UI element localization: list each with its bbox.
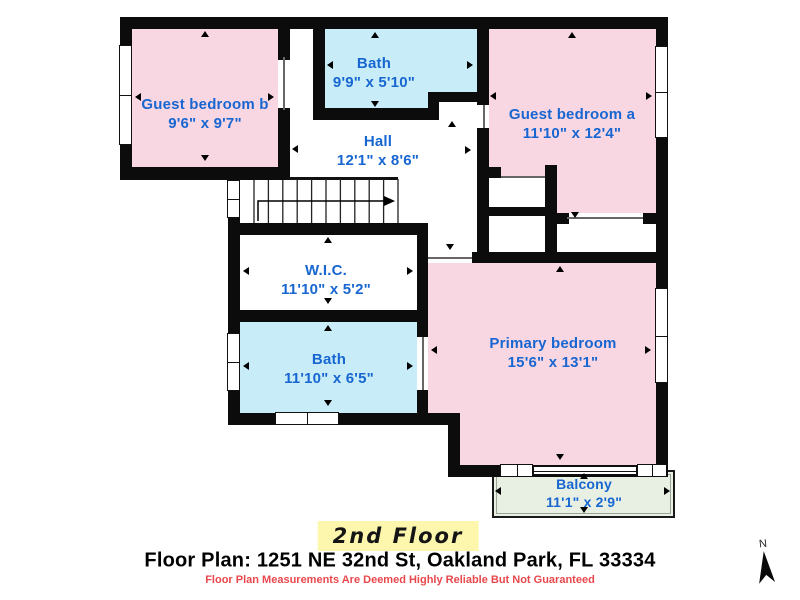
room-name: Bath: [284, 350, 374, 369]
window: [500, 464, 533, 477]
wall: [313, 17, 325, 120]
window: [637, 464, 667, 477]
wall: [313, 108, 439, 120]
wall: [477, 17, 489, 105]
measure-arrow-icon: [292, 145, 298, 153]
stairs: [240, 176, 400, 224]
window: [275, 412, 339, 425]
label-bath-lower: Bath 11'10" x 6'5": [284, 350, 374, 388]
room-dims: 15'6" x 13'1": [489, 353, 616, 372]
label-primary-bedroom: Primary bedroom 15'6" x 13'1": [489, 334, 616, 372]
label-guest-bedroom-a: Guest bedroom a 11'10" x 12'4": [509, 105, 635, 143]
wall: [417, 223, 428, 337]
door-opening: [501, 176, 545, 178]
measure-arrow-icon: [431, 346, 437, 354]
measure-arrow-icon: [556, 266, 564, 272]
door-opening: [283, 57, 285, 110]
compass: N: [745, 536, 784, 589]
room-name: Guest bedroom b: [141, 95, 268, 114]
stairs-direction-line: [258, 201, 384, 221]
wall: [545, 165, 557, 263]
measure-arrow-icon: [407, 362, 413, 370]
floor-label: 2nd Floor: [318, 521, 479, 551]
room-name: Balcony: [546, 476, 622, 494]
label-bath-upper: Bath 9'9" x 5'10": [333, 54, 415, 92]
wall: [472, 252, 668, 263]
measure-arrow-icon: [268, 93, 274, 101]
address-title: Floor Plan: 1251 NE 32nd St, Oakland Par…: [144, 550, 655, 573]
room-name: Primary bedroom: [489, 334, 616, 353]
measure-arrow-icon: [448, 121, 456, 127]
wall: [483, 207, 547, 216]
room-dims: 11'1" x 2'9": [546, 494, 622, 512]
wall: [228, 310, 428, 322]
room-name: W.I.C.: [281, 261, 371, 280]
measure-arrow-icon: [201, 31, 209, 37]
measure-arrow-icon: [646, 92, 652, 100]
label-guest-bedroom-b: Guest bedroom b 9'6" x 9'7": [141, 95, 268, 133]
room-name: Hall: [337, 132, 419, 151]
measure-arrow-icon: [243, 362, 249, 370]
measure-arrow-icon: [645, 346, 651, 354]
measure-arrow-icon: [490, 92, 496, 100]
measure-arrow-icon: [465, 146, 471, 154]
primary-step-cutout: [428, 425, 448, 465]
room-dims: 12'1" x 8'6": [337, 151, 419, 170]
measure-arrow-icon: [556, 454, 564, 460]
measure-arrow-icon: [407, 267, 413, 275]
label-wic: W.I.C. 11'10" x 5'2": [281, 261, 371, 299]
measure-arrow-icon: [324, 400, 332, 406]
measure-arrow-icon: [201, 155, 209, 161]
measure-arrow-icon: [371, 101, 379, 107]
room-dims: 11'10" x 6'5": [284, 369, 374, 388]
door-opening: [483, 105, 485, 128]
wall: [278, 108, 290, 180]
wall: [428, 92, 439, 120]
measure-arrow-icon: [324, 237, 332, 243]
measure-arrow-icon: [568, 32, 576, 38]
north-arrow-icon: [751, 550, 780, 585]
room-dims: 9'6" x 9'7": [141, 114, 268, 133]
floor-plan: Guest bedroom b 9'6" x 9'7" Bath 9'9" x …: [0, 0, 800, 600]
wall: [228, 413, 460, 425]
room-dims: 9'9" x 5'10": [333, 73, 415, 92]
stairs-direction-arrow-icon: [384, 196, 395, 206]
window: [655, 288, 668, 383]
wall: [278, 17, 290, 60]
measure-arrow-icon: [243, 267, 249, 275]
window: [655, 46, 668, 138]
wall: [120, 167, 290, 180]
window: [119, 45, 132, 145]
door-opening: [428, 257, 472, 259]
disclaimer-text: Floor Plan Measurements Are Deemed Highl…: [205, 574, 595, 586]
measure-arrow-icon: [571, 212, 579, 218]
room-dims: 11'10" x 12'4": [509, 124, 635, 143]
wall: [477, 128, 489, 263]
measure-arrow-icon: [664, 487, 670, 495]
window: [227, 180, 240, 218]
wall: [477, 167, 501, 178]
label-hall: Hall 12'1" x 8'6": [337, 132, 419, 170]
wall: [228, 223, 428, 235]
wall: [120, 17, 668, 29]
window: [227, 333, 240, 391]
wall: [643, 213, 668, 224]
room-name: Bath: [333, 54, 415, 73]
measure-arrow-icon: [324, 325, 332, 331]
bath-notch-cutout: [439, 102, 477, 112]
label-balcony: Balcony 11'1" x 2'9": [546, 476, 622, 512]
measure-arrow-icon: [467, 61, 473, 69]
measure-arrow-icon: [135, 93, 141, 101]
room-name: Guest bedroom a: [509, 105, 635, 124]
door-opening: [422, 337, 424, 390]
room-dims: 11'10" x 5'2": [281, 280, 371, 299]
measure-arrow-icon: [446, 244, 454, 250]
measure-arrow-icon: [495, 487, 501, 495]
measure-arrow-icon: [371, 32, 379, 38]
